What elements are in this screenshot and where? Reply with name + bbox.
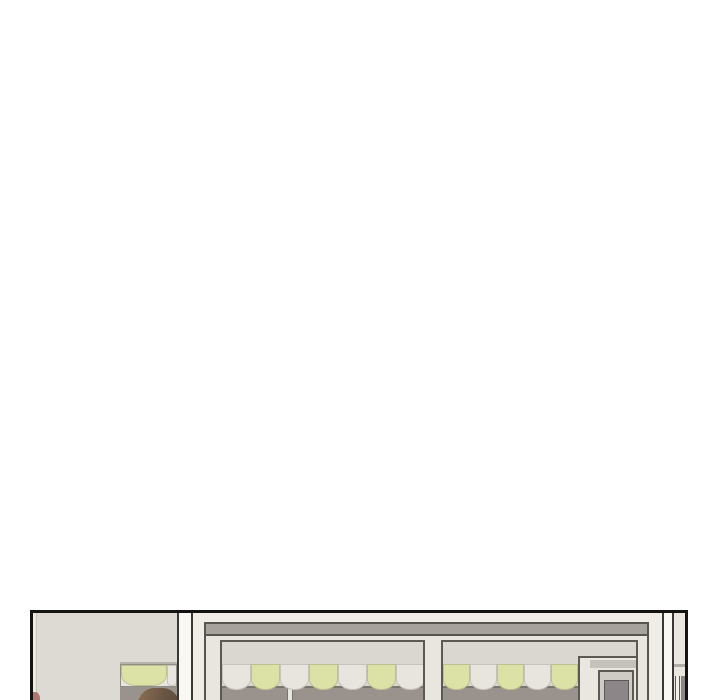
awning-scallop-green [443, 664, 470, 690]
awning-scallop-white [396, 664, 425, 690]
storefront-bay [204, 622, 649, 700]
door-frame [598, 670, 634, 700]
awning-left [222, 664, 425, 690]
pillar-left [177, 613, 193, 700]
left-wall [33, 613, 177, 700]
door-lintel [590, 660, 636, 668]
shop-window-right [441, 640, 638, 700]
awning-scallop-white [280, 664, 309, 690]
awning-scallop-green [367, 664, 396, 690]
neighbor-wall-sliver [674, 613, 685, 700]
awning-scallop-green [309, 664, 338, 690]
neighbor-door-frame [675, 676, 680, 700]
wall-corner-edge [33, 613, 37, 700]
awning-right [443, 664, 578, 690]
awning-scallop-white [524, 664, 551, 690]
neighbor-door-slab [681, 676, 685, 700]
pillar-right [662, 613, 674, 700]
neighbor-door [674, 676, 685, 700]
comic-page [0, 0, 720, 700]
neighbor-wall-line [674, 664, 685, 667]
door-slab [604, 680, 629, 700]
awning-scallop-white [222, 664, 251, 690]
storefront [193, 613, 662, 700]
fascia-band [206, 624, 647, 636]
awning-scallop-green [121, 665, 167, 686]
awning-scallop-green [551, 664, 578, 690]
awning-scallop-white [167, 665, 177, 686]
awning-scallop-white [470, 664, 497, 690]
awning-scallop-white [338, 664, 367, 690]
figure-fragment [33, 692, 40, 700]
wall-awning [120, 664, 177, 687]
awning-scallop-green [497, 664, 524, 690]
shop-window-left [220, 640, 425, 700]
comic-panel [30, 610, 688, 700]
shop-door-unit [578, 656, 636, 700]
awning-scallop-green [251, 664, 280, 690]
